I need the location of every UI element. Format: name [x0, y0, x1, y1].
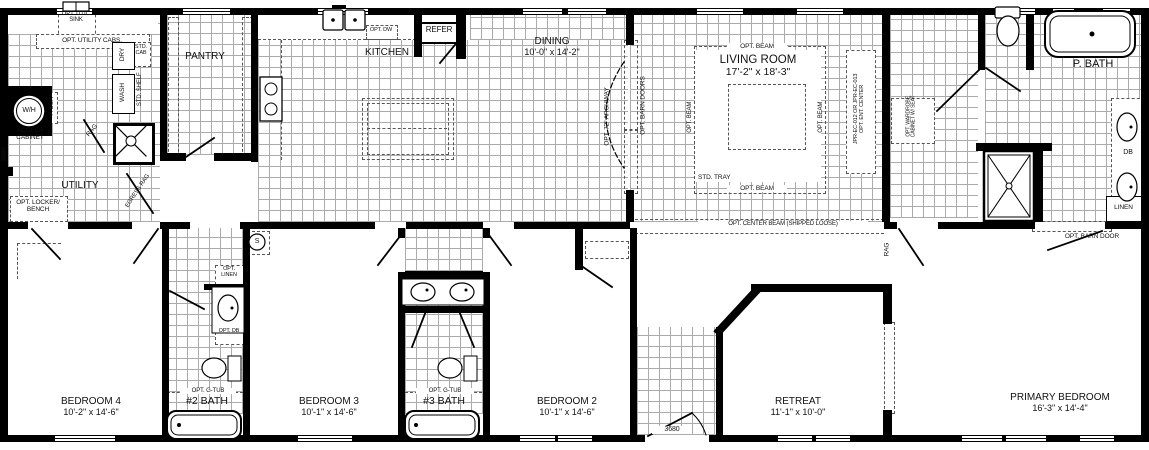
- wall-left: [0, 8, 8, 442]
- window: [183, 8, 230, 15]
- room-dims: 10'-2" x 14'-6": [28, 407, 154, 417]
- std-cab-label: STD. CAB: [132, 45, 150, 57]
- dim-3680-left-label: 3680: [0, 138, 7, 172]
- room-name: RETREAT: [742, 396, 854, 407]
- access-cabinet-label: ACCESS CABINET: [6, 127, 54, 141]
- window: [1005, 8, 1035, 15]
- wall-refer-right: [456, 15, 466, 59]
- std-shelf-label: STD. SHELF: [137, 68, 143, 110]
- room-dims: 11'-1" x 10'-0": [742, 407, 854, 417]
- wall-toilet-left: [978, 15, 985, 70]
- window: [1053, 8, 1085, 15]
- bed4-closet-dash-v: [17, 243, 18, 279]
- opt-barn-doors-label: OPT. BARN DOORS: [639, 62, 646, 150]
- wall-mid: [1105, 222, 1141, 229]
- bedroom3-label: BEDROOM 3 10'-1" x 14'-6": [266, 396, 392, 417]
- dim-3680-entry-label: 3680: [652, 426, 692, 434]
- room-name: BEDROOM 3: [266, 396, 392, 407]
- room-name: P. BATH: [1056, 58, 1130, 70]
- opt-gtub2-label: OPT. G-TUB: [180, 388, 236, 394]
- living-room-label: LIVING ROOM 17'-2" x 18'-3": [694, 54, 822, 79]
- wall-shower-east: [1034, 150, 1043, 222]
- window: [962, 435, 1002, 442]
- primary-bedroom-label: PRIMARY BEDROOM 16'-3" x 14'-4": [976, 392, 1144, 413]
- wall-mid: [938, 222, 1035, 229]
- room-dims: 16'-3" x 14'-4": [976, 403, 1144, 413]
- floor-plan: OPT. UTIL. SINK OPT. UTILITY CABS. STD. …: [0, 0, 1149, 450]
- wall-toilet-right: [1026, 15, 1034, 70]
- opt-gtub3-label: OPT. G-TUB: [416, 388, 474, 394]
- wall-retreat-primary-2: [883, 410, 892, 437]
- retreat-cased-opening: [884, 322, 895, 414]
- kitchen-island-midline: [367, 128, 447, 129]
- opt-linen-label: OPT. LINEN: [216, 267, 242, 279]
- bath3-label: #3 BATH: [406, 396, 482, 408]
- bath2-label: #2 BATH: [170, 396, 244, 408]
- bedroom4-label: BEDROOM 4 10'-2" x 14'-6": [28, 396, 154, 417]
- room-name: #3 BATH: [406, 396, 482, 408]
- rag-primary-label: RAG: [883, 235, 890, 265]
- std-tray-label: STD. TRAY: [698, 174, 744, 181]
- room-name: PANTRY: [170, 51, 240, 62]
- window: [318, 8, 368, 15]
- wall-mid: [406, 222, 483, 229]
- opt-beam-top-label: OPT. BEAM: [727, 43, 787, 50]
- opt-beam-bottom-label: OPT. BEAM: [727, 185, 787, 192]
- window: [778, 435, 812, 442]
- window: [55, 435, 115, 442]
- room-name: #2 BATH: [170, 396, 244, 408]
- wall-dining-hall-top: [626, 15, 634, 45]
- window: [558, 435, 592, 442]
- opt-barn-door-panel-1: [624, 40, 638, 130]
- pbath-label: P. BATH: [1056, 58, 1130, 70]
- opt-center-beam-label: OPT. CENTER BEAM (SHIPPED LOOSE): [698, 221, 868, 227]
- pantry-shelf-left: [168, 17, 179, 157]
- p-box-label: P. BOX: [49, 90, 55, 122]
- room-dims: 10'-1" x 14'-6": [266, 407, 392, 417]
- window: [1080, 435, 1114, 442]
- bed4-closet-dash-h: [17, 243, 61, 244]
- bedroom2-label: BEDROOM 2 10'-1" x 14'-6": [504, 396, 630, 417]
- window: [298, 435, 352, 442]
- opt-beam-right-label: OPT. BEAM: [818, 94, 824, 140]
- room-name: BEDROOM 2: [504, 396, 630, 407]
- window: [1103, 8, 1130, 15]
- wall-bath2-bed3: [243, 228, 250, 435]
- opt-utility-cabs-label: OPT. UTILITY CABS.: [36, 37, 148, 44]
- bath3-floor: [405, 228, 483, 414]
- utility-label: UTILITY: [52, 180, 108, 191]
- ent-center-label: JPR-EC-012 OR JPR-EC-013 OPT. ENT. CENTE…: [854, 70, 866, 148]
- retreat-label: RETREAT 11'-1" x 10'-0": [742, 396, 854, 417]
- barn-door-track: [1032, 221, 1112, 232]
- wall-bath2-partition: [204, 284, 245, 290]
- opt-beam-left-label: OPT. BEAM: [687, 94, 693, 140]
- wall-mid: [884, 222, 897, 229]
- opt-locker-bench-label: OPT. LOCKER/ BENCH: [12, 199, 64, 213]
- wash-label: WASH: [119, 74, 126, 111]
- opt-wardrobe-label: OPT. WARDROBE CABINET W/ SEAT: [907, 94, 918, 138]
- bath2-floor: [165, 228, 243, 414]
- entry-floor: [637, 327, 716, 435]
- room-dims: 10'-1" x 14'-6": [504, 407, 630, 417]
- room-name: UTILITY: [52, 180, 108, 191]
- opt-barn-door-panel-2: [624, 130, 638, 194]
- smoke-detector-label: S: [252, 238, 262, 246]
- room-name: LIVING ROOM: [694, 54, 822, 67]
- room-name: PRIMARY BEDROOM: [976, 392, 1144, 403]
- wall-living-closet: [882, 15, 890, 222]
- wall-pantry-south-2: [214, 153, 258, 161]
- window: [568, 8, 606, 15]
- mech-chase-box: [113, 123, 155, 165]
- wall-entry-retreat: [716, 327, 723, 437]
- door-gap-bath3-right: [483, 238, 490, 272]
- wall-pantry-kitchen: [251, 15, 258, 162]
- pantry-floor: [167, 15, 251, 155]
- window: [697, 8, 743, 15]
- opt-barn-door-label: OPT. BARN DOOR: [1056, 233, 1128, 240]
- wall-retreat-primary-1: [883, 284, 892, 324]
- wall-mid: [514, 222, 630, 229]
- kitchen-island-inner: [367, 103, 449, 155]
- window: [816, 435, 850, 442]
- wall-mid: [8, 222, 28, 229]
- wall-pantry-south-1: [160, 153, 186, 161]
- wall-retreat-top: [751, 284, 891, 292]
- room-dims: 10'-0" x 14'-2": [492, 47, 612, 57]
- wall-dining-hall-bot: [626, 190, 634, 222]
- door-gap-bath3-left: [398, 238, 405, 272]
- counter-edge-left: [281, 40, 282, 160]
- wall-mid: [68, 222, 132, 229]
- db-label: DB: [1117, 149, 1139, 157]
- wall-bed2-entry: [630, 228, 637, 435]
- linen-label: LINEN: [1107, 204, 1140, 211]
- wall-bed2-closet: [575, 228, 583, 270]
- water-heater-label: W/H: [16, 107, 42, 115]
- wall-mid: [240, 222, 375, 229]
- wall-bed4-bath2: [162, 228, 169, 435]
- wall-utility-pantry: [160, 15, 167, 160]
- opt-util-sink-label: OPT. UTIL. SINK: [58, 11, 94, 24]
- wall-bath3-bar-top: [400, 271, 485, 279]
- window: [520, 435, 555, 442]
- dry-label: DRY: [119, 42, 126, 67]
- dining-label: DINING 10'-0" x 14'-2": [492, 36, 612, 57]
- window: [797, 8, 843, 15]
- door-gap-entry: [645, 435, 709, 442]
- kitchen-label: KITCHEN: [348, 47, 426, 58]
- opt-72-archway-label: OPT. 72" ARCHWAY: [603, 76, 610, 158]
- room-dims: 17'-2" x 18'-3": [694, 67, 822, 79]
- window: [523, 8, 562, 15]
- room-name: DINING: [492, 36, 612, 47]
- wall-right: [1141, 8, 1149, 442]
- bed2-closet-shelf: [585, 241, 629, 259]
- wall-bath3-bar-bot: [400, 306, 485, 313]
- room-name: KITCHEN: [348, 47, 426, 58]
- room-name: BEDROOM 4: [28, 396, 154, 407]
- refer-label: REFER: [421, 26, 457, 35]
- window: [1006, 435, 1046, 442]
- opt-tray-square: [728, 84, 806, 150]
- opt-dw-label: OPT. DW: [367, 28, 395, 34]
- pantry-label: PANTRY: [170, 51, 240, 62]
- opt-db-label: OPT. DB: [216, 329, 242, 335]
